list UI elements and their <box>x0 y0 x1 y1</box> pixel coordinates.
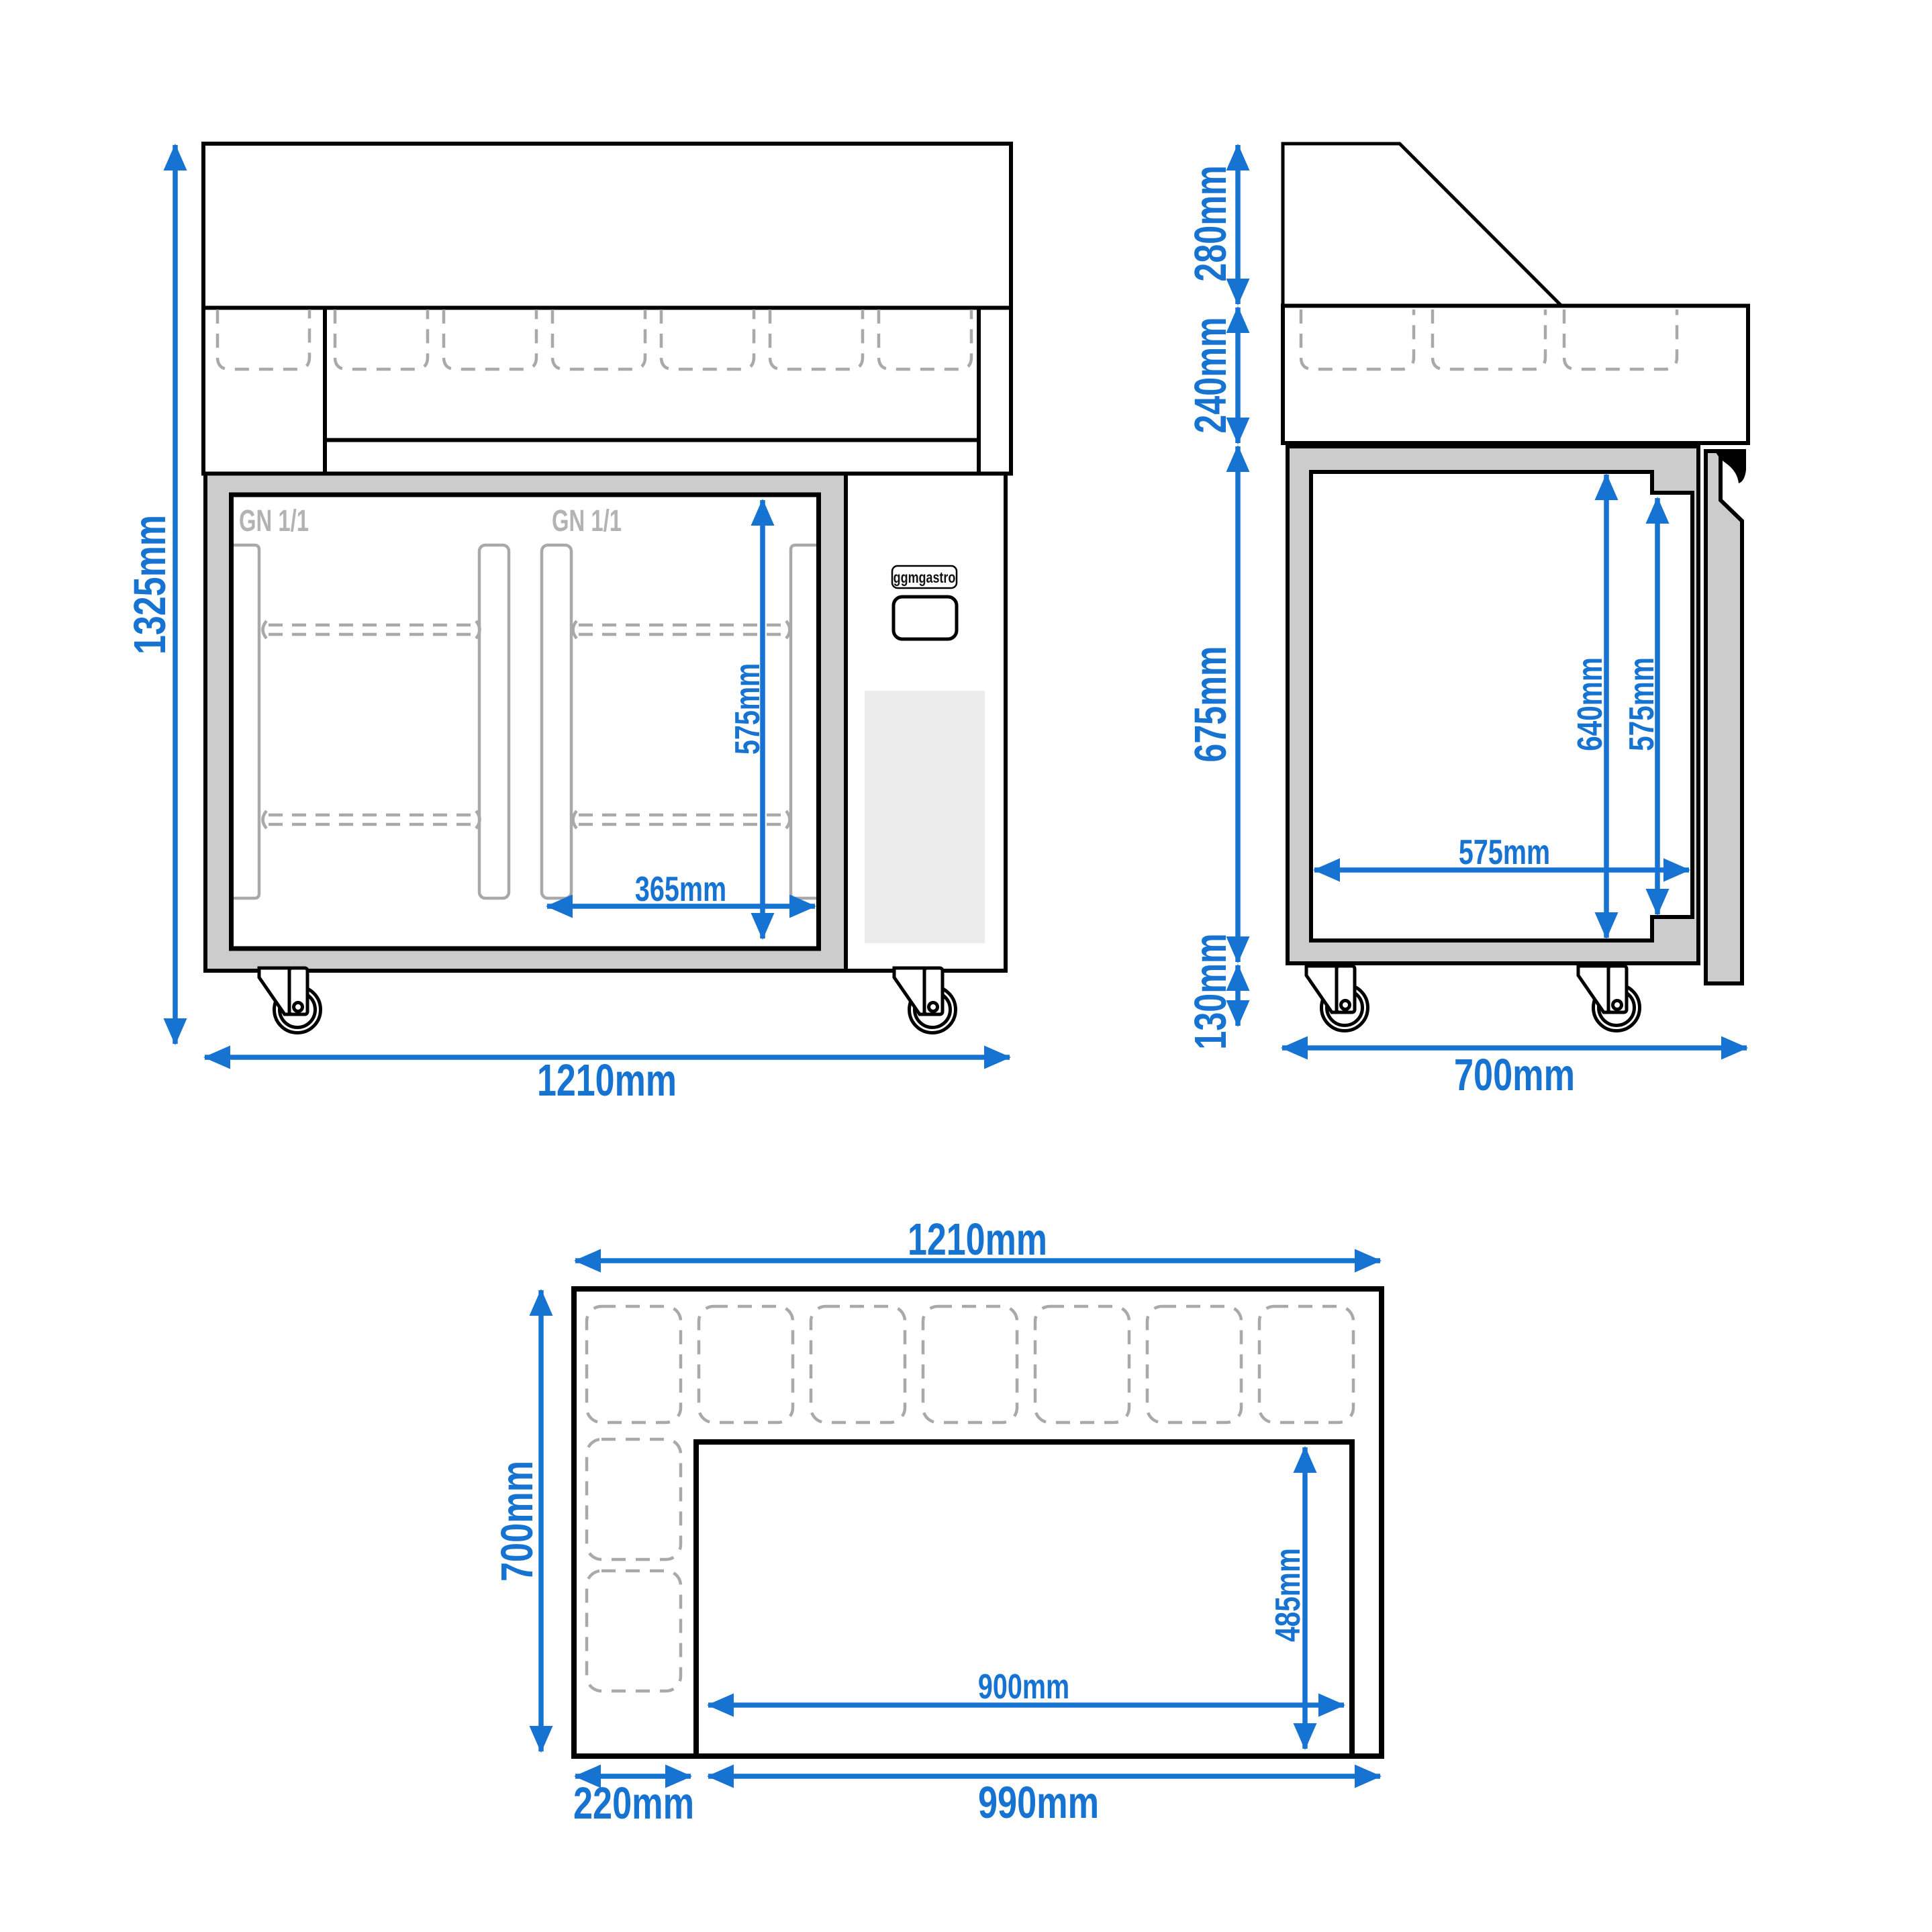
svg-text:675mm: 675mm <box>1185 646 1236 762</box>
svg-text:575mm: 575mm <box>728 663 767 755</box>
svg-text:1325mm: 1325mm <box>125 515 175 655</box>
svg-text:ggmgastro: ggmgastro <box>893 569 956 587</box>
svg-text:575mm: 575mm <box>1459 832 1550 872</box>
svg-text:575mm: 575mm <box>1622 657 1661 751</box>
svg-text:900mm: 900mm <box>978 1667 1069 1706</box>
svg-text:700mm: 700mm <box>492 1461 542 1582</box>
svg-text:1210mm: 1210mm <box>908 1214 1047 1265</box>
svg-text:485mm: 485mm <box>1268 1548 1307 1642</box>
svg-text:GN 1/1: GN 1/1 <box>239 504 309 538</box>
svg-text:700mm: 700mm <box>1454 1050 1575 1100</box>
svg-text:130mm: 130mm <box>1185 933 1236 1049</box>
svg-text:GN 1/1: GN 1/1 <box>552 504 622 538</box>
svg-text:365mm: 365mm <box>635 869 726 909</box>
svg-text:990mm: 990mm <box>978 1778 1099 1828</box>
svg-text:280mm: 280mm <box>1185 165 1236 281</box>
svg-text:240mm: 240mm <box>1185 317 1236 433</box>
svg-text:1210mm: 1210mm <box>537 1055 677 1106</box>
svg-text:220mm: 220mm <box>573 1778 694 1829</box>
svg-text:640mm: 640mm <box>1570 657 1609 751</box>
